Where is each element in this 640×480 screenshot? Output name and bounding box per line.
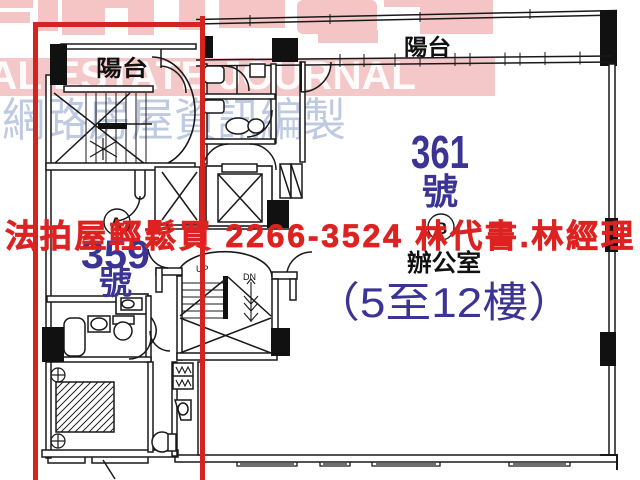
svg-text:陽台: 陽台	[96, 56, 148, 81]
svg-text:號: 號	[422, 171, 458, 212]
svg-text:網路房屋資訊編製: 網路房屋資訊編製	[2, 94, 346, 146]
svg-text:（5至12樓）: （5至12樓）	[314, 279, 574, 326]
svg-text:陽台: 陽台	[404, 35, 451, 60]
svg-text:號: 號	[99, 264, 132, 301]
